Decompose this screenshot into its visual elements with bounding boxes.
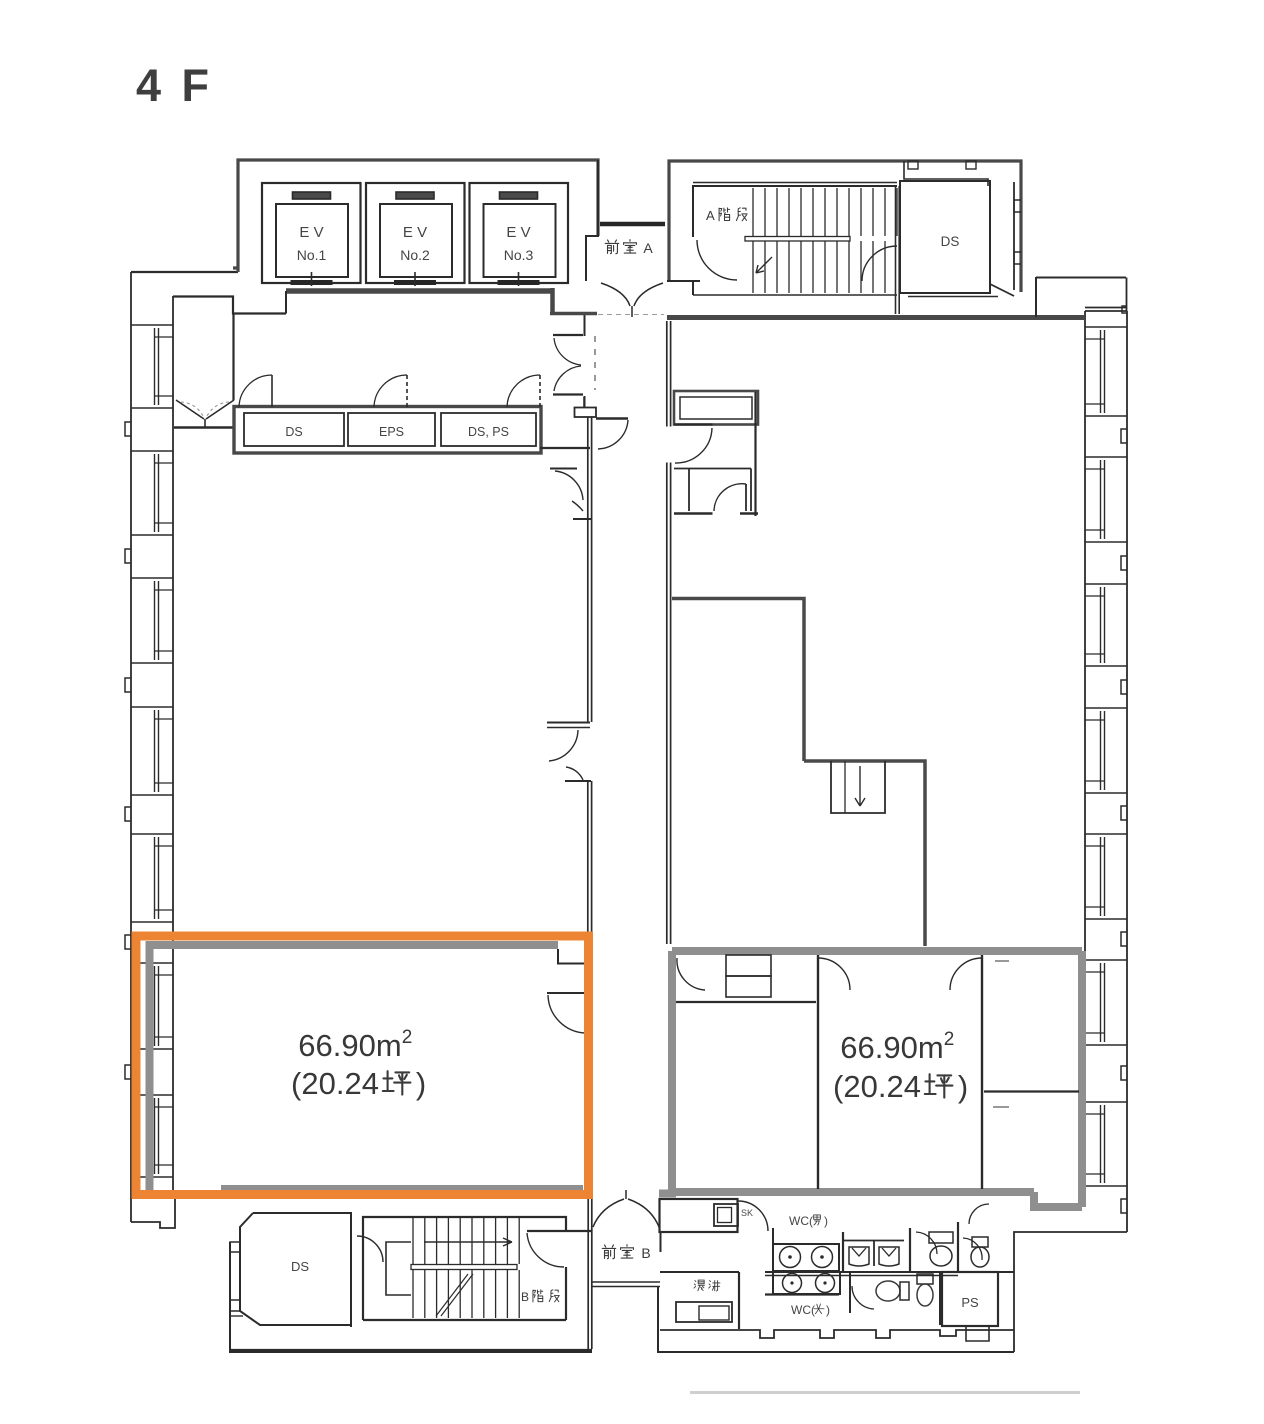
svg-text:B: B — [641, 1245, 650, 1261]
svg-text:B: B — [521, 1290, 529, 1304]
svg-text:DS: DS — [941, 234, 960, 249]
svg-text:No.3: No.3 — [504, 247, 534, 263]
svg-text:DS: DS — [291, 1259, 309, 1274]
svg-text:SK: SK — [741, 1208, 753, 1218]
svg-text:DS: DS — [285, 425, 302, 439]
svg-text:DS, PS: DS, PS — [468, 425, 509, 439]
svg-text:E V: E V — [299, 224, 323, 241]
svg-text:A: A — [643, 240, 653, 256]
svg-text:66.90m: 66.90m — [298, 1028, 401, 1063]
svg-text:WC(: WC( — [791, 1303, 815, 1317]
svg-text:): ) — [826, 1303, 830, 1317]
svg-text:EPS: EPS — [379, 425, 404, 439]
svg-text:E V: E V — [506, 224, 530, 241]
svg-text:E V: E V — [403, 224, 427, 241]
svg-text:2: 2 — [402, 1027, 413, 1048]
svg-text:(20.24: (20.24 — [291, 1066, 379, 1101]
svg-text:No.1: No.1 — [297, 247, 327, 263]
svg-text:A: A — [706, 208, 715, 223]
svg-text:2: 2 — [944, 1029, 955, 1050]
svg-text:66.90m: 66.90m — [840, 1030, 943, 1065]
svg-text:): ) — [958, 1069, 968, 1104]
svg-text:): ) — [824, 1214, 828, 1228]
svg-text:4 F: 4 F — [136, 60, 213, 111]
svg-text:PS: PS — [961, 1295, 979, 1310]
svg-text:): ) — [416, 1066, 426, 1101]
svg-text:WC(: WC( — [789, 1214, 813, 1228]
svg-text:No.2: No.2 — [400, 247, 430, 263]
svg-text:(20.24: (20.24 — [833, 1069, 921, 1104]
